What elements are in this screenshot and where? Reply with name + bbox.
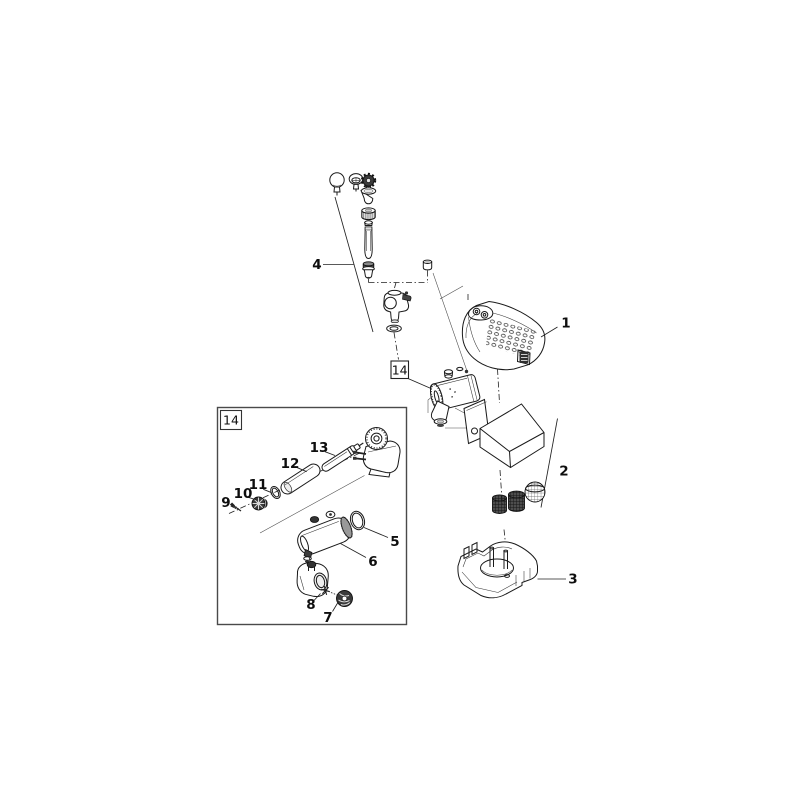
part-label-8: 8 — [306, 597, 315, 613]
media-cylinder-2 — [509, 491, 525, 511]
part-label-4: 4 — [312, 257, 321, 273]
part-2-filter-media — [493, 482, 546, 514]
part-label-7: 7 — [323, 610, 332, 626]
media-cylinder-1 — [493, 495, 507, 514]
detail-box-label-14: 14 — [223, 413, 239, 428]
part-label-1: 1 — [561, 316, 570, 332]
part-label-12: 12 — [281, 456, 300, 472]
nozzle-bell — [361, 188, 375, 204]
coupling-nut — [362, 208, 375, 220]
part-1-top-cover — [462, 294, 557, 370]
part-3-bottom-housing — [458, 542, 566, 598]
riser-tube — [365, 227, 372, 259]
part-8-housing-cover — [297, 561, 329, 596]
tube-connector — [363, 262, 375, 279]
washer — [387, 325, 402, 332]
blanking-cap — [423, 260, 431, 270]
part-label-5: 5 — [390, 534, 399, 550]
part-label-3: 3 — [568, 572, 577, 588]
part-label-2: 2 — [559, 464, 568, 480]
part-label-11: 11 — [249, 477, 268, 493]
part-2-filter-foam-block — [480, 404, 544, 468]
part-label-6: 6 — [368, 554, 377, 570]
reference-box-14-main: 14 — [391, 361, 431, 389]
part-label-9: 9 — [221, 495, 230, 511]
t-connector — [384, 290, 411, 322]
media-ball-3 — [525, 482, 545, 502]
nozzle-head-crosshair — [349, 174, 363, 192]
boxed-label-14-main: 14 — [392, 362, 408, 377]
exploded-parts-diagram: 14 14 — [0, 0, 800, 800]
collar-ring — [365, 221, 373, 226]
part-4-fountain-assembly — [323, 173, 467, 371]
nozzle-head-ball — [330, 173, 344, 196]
part-label-13: 13 — [310, 440, 329, 456]
